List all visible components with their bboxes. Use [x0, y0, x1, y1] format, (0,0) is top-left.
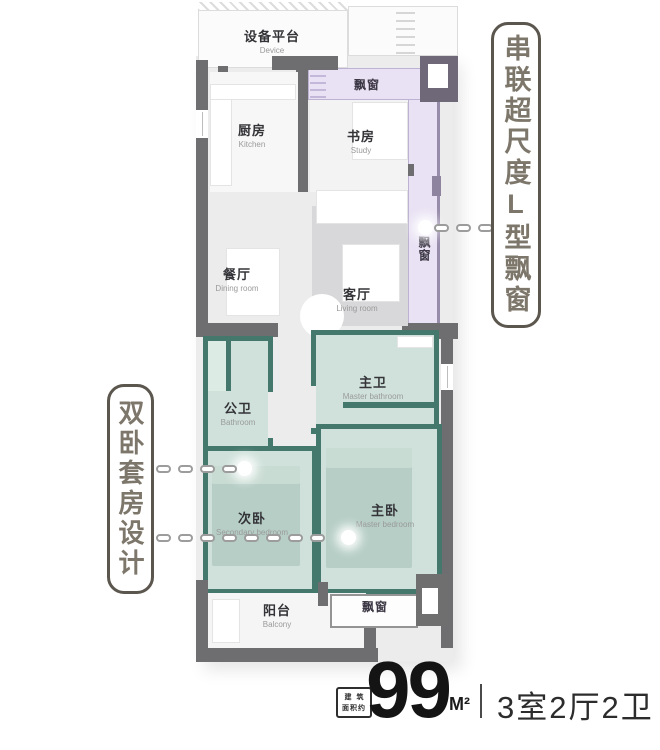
- guest-bathroom-door: [268, 392, 273, 438]
- callout-left: 双卧套房设计: [107, 384, 154, 594]
- room-label-study: 书房 Study: [347, 126, 375, 155]
- guest-bathroom-name: 公卫: [221, 398, 256, 417]
- room-label-balcony: 阳台 Balcony: [263, 600, 291, 629]
- callout-left-text: 双卧套房设计: [112, 399, 149, 579]
- area-note-line1: 建筑: [340, 692, 369, 702]
- connector-right: [434, 224, 493, 232]
- shower-partition: [226, 341, 231, 391]
- callout-right-text: 串联超尺度L型飘窗: [497, 34, 536, 316]
- master-bedroom-en: Master bedroom: [356, 520, 414, 529]
- balcony-en: Balcony: [263, 620, 291, 629]
- master-bed-pillow: [326, 448, 412, 468]
- callout-dot: [237, 461, 252, 476]
- room-label-master-bedroom: 主卧 Master bedroom: [356, 500, 414, 529]
- kitchen-name: 厨房: [238, 120, 266, 139]
- callout-right: 串联超尺度L型飘窗: [491, 22, 541, 328]
- room-label-living: 客厅 Living room: [336, 284, 377, 313]
- secondary-bedroom-name: 次卧: [216, 508, 288, 527]
- balcony-name: 阳台: [263, 600, 291, 619]
- kitchen-counter-top: [210, 84, 296, 100]
- sofa: [316, 190, 408, 224]
- kitchen-en: Kitchen: [238, 140, 266, 149]
- connector-left-upper: [156, 465, 237, 473]
- room-label-secondary-bedroom: 次卧 Secondary bedroom: [216, 508, 288, 537]
- dining-name: 餐厅: [215, 264, 258, 283]
- vanity: [397, 336, 433, 348]
- bay-window-mullions: [310, 70, 326, 98]
- master-bathroom-en: Master bathroom: [343, 392, 403, 401]
- connector-left-lower: [156, 534, 325, 542]
- column-core-top: [428, 64, 448, 88]
- room-label-guest-bathroom: 公卫 Bathroom: [221, 398, 256, 427]
- wall-segment: [196, 60, 208, 110]
- column-core-bottom: [422, 588, 438, 614]
- living-en: Living room: [336, 304, 377, 313]
- window-left: [196, 110, 208, 138]
- platform-ladder-marks: [396, 8, 415, 54]
- wall-segment: [441, 338, 453, 364]
- window-right: [441, 364, 453, 390]
- master-bedroom-name: 主卧: [356, 500, 414, 519]
- bay-window-top-label: 飘窗: [354, 76, 380, 93]
- dining-en: Dining room: [215, 284, 258, 293]
- wall-segment: [318, 582, 328, 606]
- guest-bathroom-en: Bathroom: [221, 418, 256, 427]
- wall-segment: [196, 138, 208, 324]
- bay-window-divider: [432, 176, 441, 196]
- floorplan-page: { "annotations": { "right_callout": "串联超…: [0, 0, 660, 750]
- study-name: 书房: [347, 126, 375, 145]
- master-bathroom-name: 主卫: [343, 372, 403, 391]
- bay-window-right-strip: [408, 68, 440, 332]
- device-platform-en: Device: [244, 46, 300, 55]
- master-bathroom-door: [311, 386, 316, 428]
- living-name: 客厅: [336, 284, 377, 303]
- shower-area: [208, 341, 228, 391]
- bay-window-right-label: 飘窗: [416, 236, 433, 262]
- area-note-line2: 面积约: [342, 703, 366, 713]
- room-label-dining: 餐厅 Dining room: [215, 264, 258, 293]
- footer-divider: [480, 684, 482, 718]
- room-label-master-bathroom: 主卫 Master bathroom: [343, 372, 403, 401]
- wall-segment: [196, 323, 278, 337]
- callout-dot: [341, 530, 356, 545]
- room-label-device-platform: 设备平台 Device: [244, 26, 300, 55]
- room-label-kitchen: 厨房 Kitchen: [238, 120, 266, 149]
- bay-window-bottom-label: 飘窗: [362, 598, 388, 615]
- layout-summary: 3室2厅2卫: [497, 682, 654, 727]
- callout-dot: [418, 220, 433, 235]
- master-bathroom-partition: [343, 402, 435, 408]
- study-en: Study: [347, 146, 375, 155]
- area-value: 99: [366, 650, 449, 730]
- area-unit: M²: [449, 694, 470, 715]
- device-platform-name: 设备平台: [244, 26, 300, 45]
- washer: [212, 599, 240, 643]
- wall-segment: [196, 648, 378, 662]
